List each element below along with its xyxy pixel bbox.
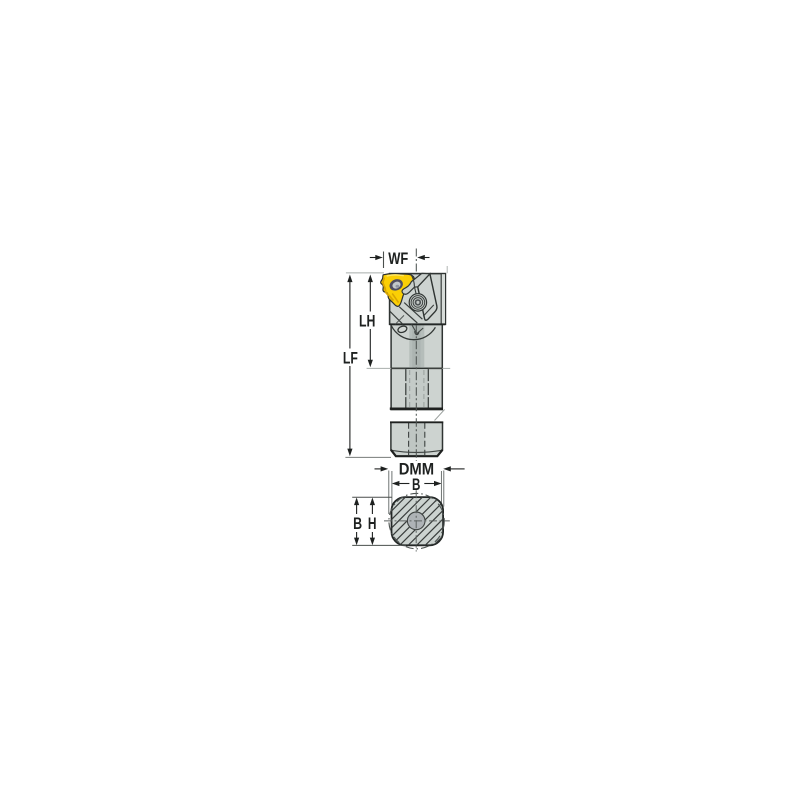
svg-text:B: B [353, 514, 362, 533]
svg-text:LH: LH [359, 311, 375, 330]
svg-text:H: H [368, 514, 377, 533]
svg-text:LF: LF [343, 349, 358, 368]
svg-text:WF: WF [388, 249, 408, 268]
